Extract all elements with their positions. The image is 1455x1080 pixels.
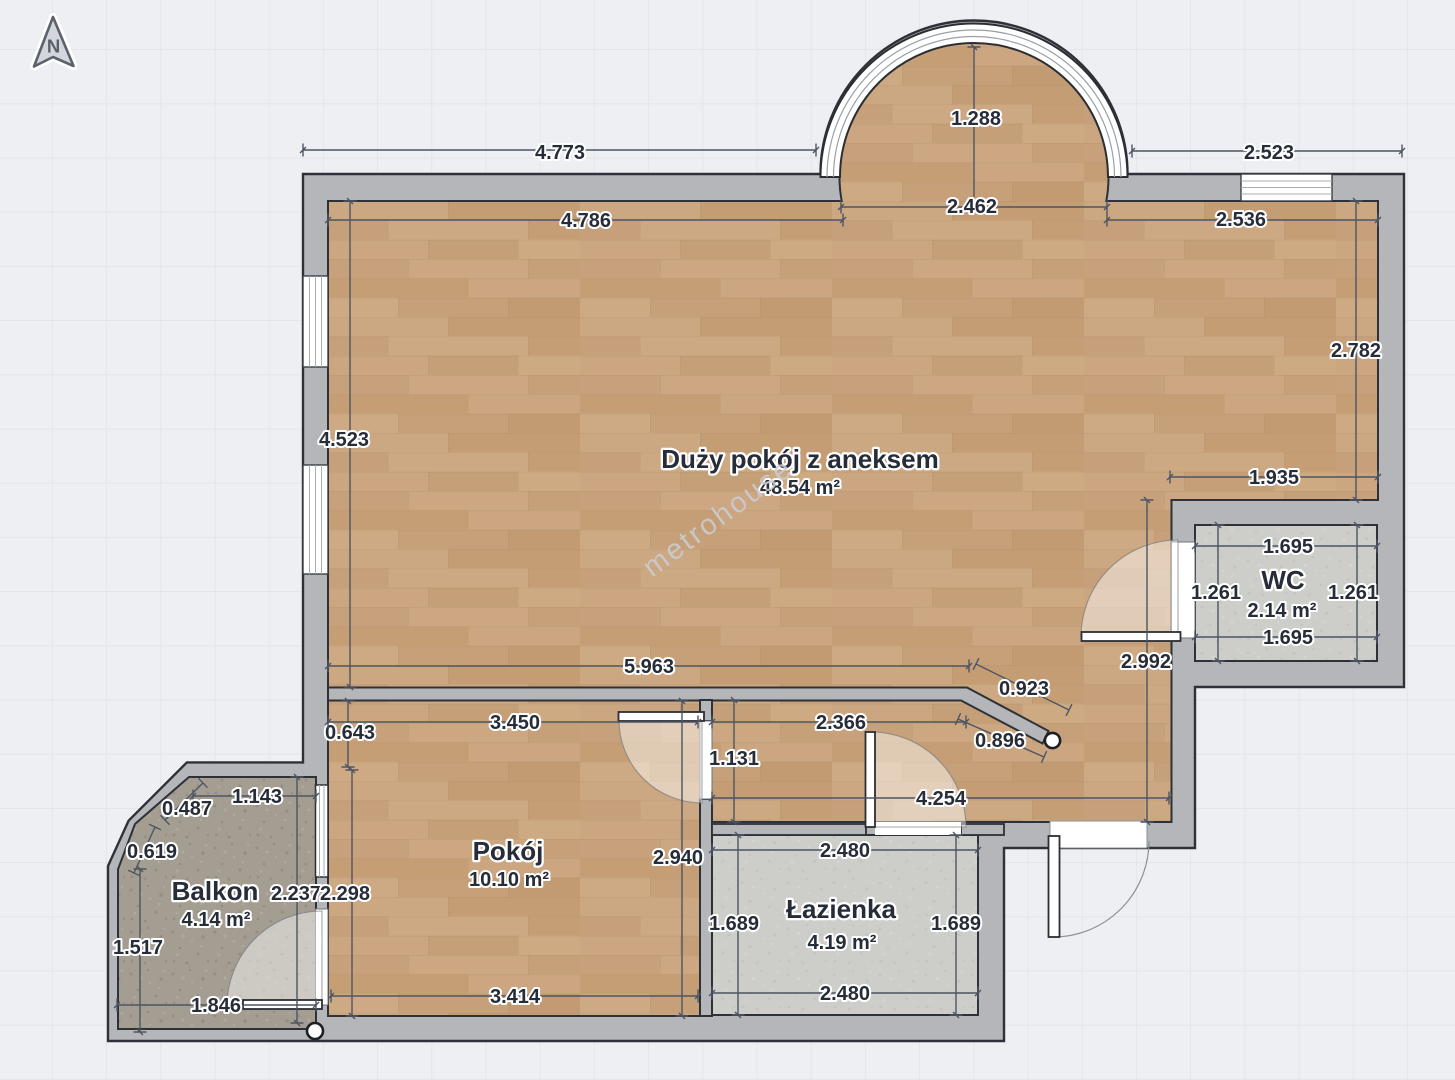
- svg-text:1.288: 1.288: [951, 108, 1001, 130]
- svg-text:2.523: 2.523: [1244, 142, 1294, 164]
- svg-text:WC: WC: [1261, 565, 1305, 595]
- svg-text:0.487: 0.487: [162, 798, 212, 820]
- svg-text:1.143: 1.143: [232, 786, 282, 808]
- svg-text:2.237: 2.237: [271, 883, 321, 905]
- svg-text:1.695: 1.695: [1263, 627, 1313, 649]
- svg-text:1.517: 1.517: [113, 937, 163, 959]
- svg-text:0.643: 0.643: [325, 722, 375, 744]
- svg-text:Łazienka: Łazienka: [786, 894, 896, 924]
- svg-text:1.689: 1.689: [709, 913, 759, 935]
- svg-text:2.480: 2.480: [820, 840, 870, 862]
- svg-text:4.773: 4.773: [535, 142, 585, 164]
- svg-text:Duży pokój z aneksem: Duży pokój z aneksem: [661, 444, 938, 474]
- svg-text:2.782: 2.782: [1331, 340, 1381, 362]
- svg-text:10.10 m²: 10.10 m²: [469, 869, 549, 891]
- svg-text:0.923: 0.923: [999, 678, 1049, 700]
- svg-text:2.536: 2.536: [1216, 209, 1266, 231]
- svg-text:1.261: 1.261: [1191, 582, 1241, 604]
- svg-text:2.480: 2.480: [820, 983, 870, 1005]
- svg-text:3.414: 3.414: [490, 986, 541, 1008]
- svg-text:2.298: 2.298: [320, 883, 370, 905]
- svg-text:2.940: 2.940: [653, 847, 703, 869]
- svg-text:Balkon: Balkon: [172, 876, 259, 906]
- svg-text:4.786: 4.786: [561, 210, 611, 232]
- svg-text:3.450: 3.450: [490, 712, 540, 734]
- svg-text:1.695: 1.695: [1263, 536, 1313, 558]
- svg-text:1.689: 1.689: [931, 913, 981, 935]
- svg-text:N: N: [47, 36, 60, 57]
- svg-text:0.896: 0.896: [975, 730, 1025, 752]
- svg-text:4.523: 4.523: [319, 429, 369, 451]
- svg-text:2.14 m²: 2.14 m²: [1248, 600, 1317, 622]
- svg-text:4.14 m²: 4.14 m²: [182, 909, 251, 931]
- svg-text:1.846: 1.846: [191, 995, 241, 1017]
- svg-text:0.619: 0.619: [127, 841, 177, 863]
- svg-text:Pokój: Pokój: [473, 836, 544, 866]
- svg-text:5.963: 5.963: [624, 656, 674, 678]
- svg-text:1.935: 1.935: [1249, 467, 1299, 489]
- svg-text:4.254: 4.254: [916, 788, 967, 810]
- svg-text:2.462: 2.462: [947, 196, 997, 218]
- svg-text:1.261: 1.261: [1328, 582, 1378, 604]
- svg-text:1.131: 1.131: [709, 748, 759, 770]
- svg-text:2.366: 2.366: [816, 712, 866, 734]
- svg-text:4.19 m²: 4.19 m²: [808, 932, 877, 954]
- svg-text:2.992: 2.992: [1121, 651, 1171, 673]
